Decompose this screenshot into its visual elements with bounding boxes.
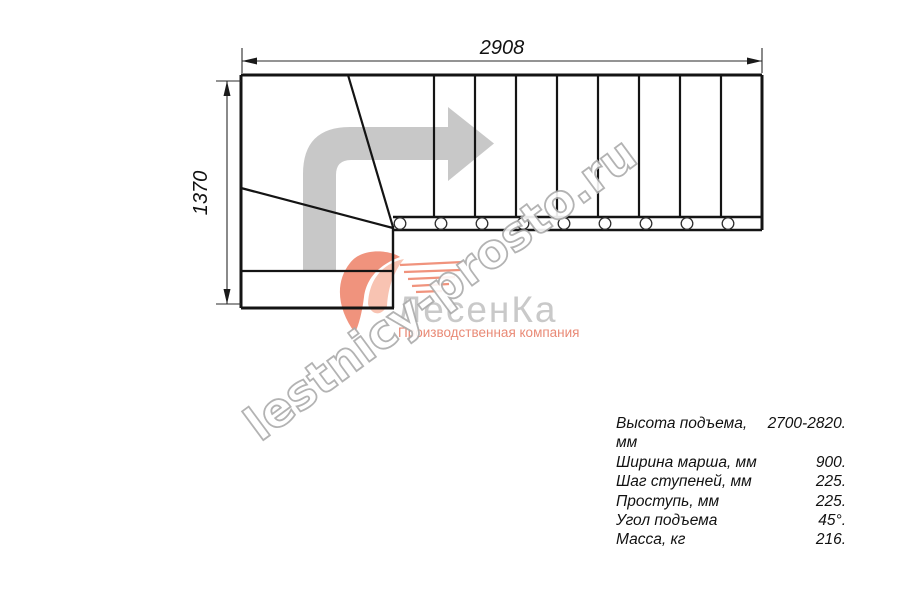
spec-value: 216.: [816, 530, 846, 549]
spec-label: Высота подъема, мм: [616, 414, 768, 453]
spec-value: 2700-2820.: [768, 414, 846, 453]
spec-row-height: Высота подъема, мм 2700-2820.: [616, 414, 846, 453]
spec-value: 900.: [816, 453, 846, 472]
dim-arrow-right: [747, 58, 762, 65]
spec-row-flight-width: Ширина марша, мм 900.: [616, 453, 846, 472]
dimension-width: 2908: [242, 37, 762, 73]
spec-row-mass: Масса, кг 216.: [616, 530, 846, 549]
spec-row-tread: Проступь, мм 225.: [616, 492, 846, 511]
spec-value: 225.: [816, 492, 846, 511]
spec-label: Проступь, мм: [616, 492, 719, 511]
dimension-width-label: 2908: [479, 37, 525, 59]
site-watermark: lestnicy-prosto.ru: [235, 127, 647, 452]
spec-label: Шаг ступеней, мм: [616, 472, 752, 491]
dimension-height: 1370: [190, 81, 241, 304]
dim-arrow-bottom: [224, 289, 231, 304]
spec-label: Ширина марша, мм: [616, 453, 757, 472]
spec-label: Угол подъема: [616, 511, 717, 530]
dimension-height-label: 1370: [190, 171, 212, 216]
specs-table: Высота подъема, мм 2700-2820. Ширина мар…: [616, 414, 846, 550]
spec-label: Масса, кг: [616, 530, 685, 549]
spec-row-step-pitch: Шаг ступеней, мм 225.: [616, 472, 846, 491]
spec-value: 225.: [816, 472, 846, 491]
dim-arrow-left: [242, 58, 257, 65]
spec-row-angle: Угол подъема 45°.: [616, 511, 846, 530]
dim-arrow-top: [224, 81, 231, 96]
staircase-drawing-canvas: ЛесенКа Производственная компания: [0, 0, 900, 600]
spec-value: 45°.: [818, 511, 846, 530]
